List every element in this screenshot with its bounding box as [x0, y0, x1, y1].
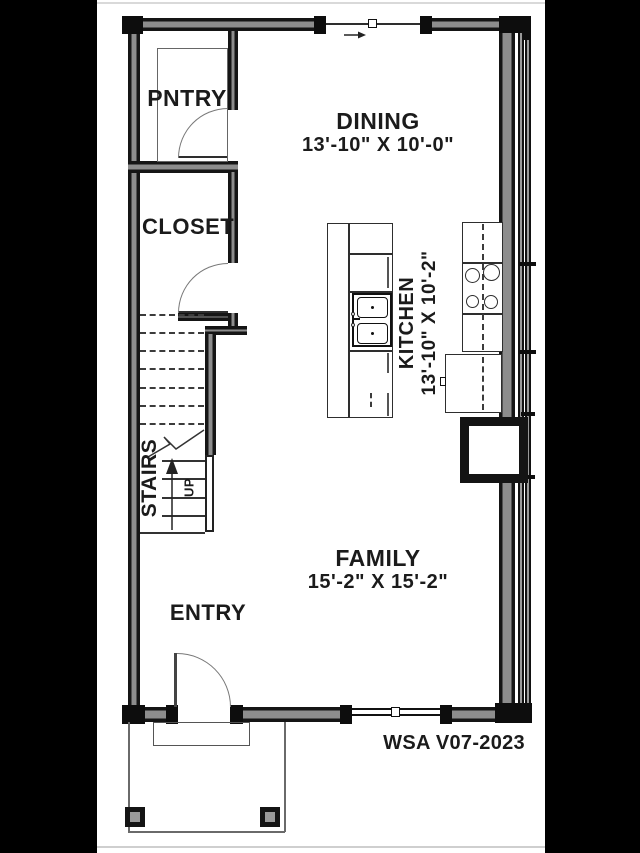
pantry-label: PNTRY — [146, 85, 228, 111]
family-label-block: FAMILY 15'-2" X 15'-2" — [282, 545, 474, 594]
stairs-label: STAIRS — [139, 439, 161, 517]
kitchen-dimensions: 13'-10" X 10'-2" — [419, 251, 441, 396]
window-direction-arrow-icon — [358, 32, 366, 39]
closet-label: CLOSET — [142, 214, 232, 239]
dining-label-block: DINING 13'-10" X 10'-0" — [282, 108, 474, 157]
dining-dimensions: 13'-10" X 10'-0" — [282, 134, 474, 157]
kitchen-label: KITCHEN — [396, 277, 419, 369]
up-arrow-icon — [166, 458, 178, 474]
family-dimensions: 15'-2" X 15'-2" — [282, 571, 474, 594]
sheet-code: WSA V07-2023 — [377, 732, 525, 755]
kitchen-label-block: KITCHEN 13'-10" X 10'-2" — [395, 248, 441, 398]
stairs-up-label: UP — [183, 474, 198, 502]
dining-label: DINING — [282, 108, 474, 134]
floor-plan-screenshot: PNTRY CLOSET DINING 13'-10" X 10'-0" KIT… — [0, 0, 640, 853]
entry-label: ENTRY — [166, 600, 250, 625]
family-label: FAMILY — [282, 545, 474, 571]
